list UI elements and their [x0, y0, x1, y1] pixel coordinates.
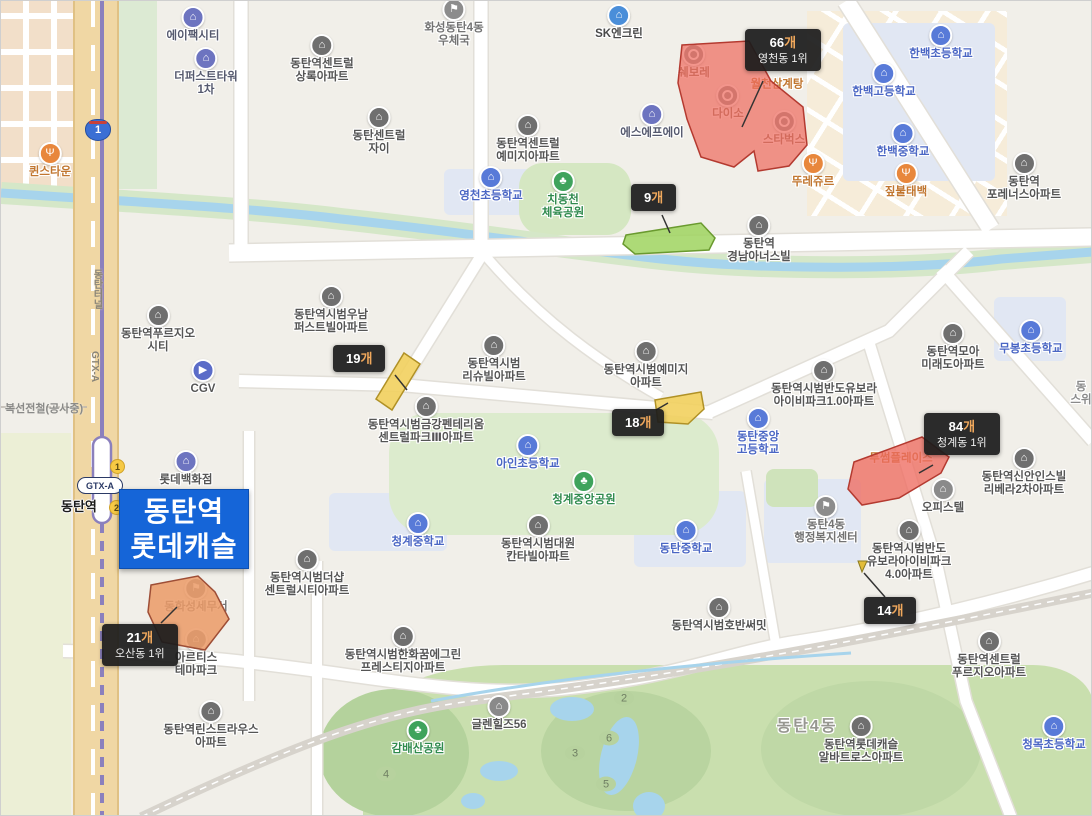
apartment-icon: ⌂: [391, 625, 414, 648]
apartment-icon: ⌂: [978, 630, 1001, 653]
map-canvas[interactable]: ⌂에이팩시티⌂더퍼스트타워1차Ψ퀸스타운⚑화성동탄4동우체국⌂동탄역센트럴상록아…: [0, 0, 1092, 816]
gas-icon: ⌂: [608, 4, 631, 27]
apartment-icon: ⌂: [1013, 152, 1036, 175]
poi-짚불태백[interactable]: Ψ짚불태백: [885, 162, 927, 199]
poi-동탄역시범금강펜테리움-센트럴파크Ⅲ아파트[interactable]: ⌂동탄역시범금강펜테리움센트럴파크Ⅲ아파트: [368, 395, 484, 445]
apartment-icon: ⌂: [849, 715, 872, 738]
poi-동탄역시범호반써밋[interactable]: ⌂동탄역시범호반써밋: [671, 596, 766, 633]
poi-label: SK엔크린: [595, 28, 643, 41]
poi-더퍼스트타워-1차[interactable]: ⌂더퍼스트타워1차: [174, 47, 237, 97]
poi-감배산공원[interactable]: ♣감배산공원: [392, 719, 445, 756]
school-icon: ⌂: [479, 166, 502, 189]
tooltip-count: 21개: [115, 629, 165, 646]
poi-동탄역센트럴-예미지아파트[interactable]: ⌂동탄역센트럴예미지아파트: [496, 114, 559, 164]
poi-label: 청계중앙공원: [552, 494, 615, 507]
poi-동탄역센트럴-상록아파트[interactable]: ⌂동탄역센트럴상록아파트: [290, 34, 353, 84]
poi-label: 동스위: [1070, 381, 1091, 407]
tooltip-rank: 영천동 1위: [758, 53, 808, 66]
restaurant-icon: Ψ: [38, 142, 61, 165]
poi-투썸플레이스[interactable]: 투썸플레이스: [869, 453, 932, 466]
poi-다이소[interactable]: 다이소: [712, 84, 744, 121]
poi-label: 롯데백화점: [160, 474, 213, 487]
poi-label: 월천삼계탕: [751, 79, 804, 92]
apartment-icon: ⌂: [482, 334, 505, 357]
poi-label: 동탄역시범한화꿈에그린프레스티지아파트: [345, 649, 461, 675]
apartment-icon: ⌂: [707, 596, 730, 619]
government-icon: ⚑: [442, 0, 465, 21]
poi-동탄역-포레너스아파트[interactable]: ⌂동탄역포레너스아파트: [987, 152, 1061, 202]
poi-label: 동탄역시범더샵센트럴시티아파트: [265, 572, 350, 598]
park-icon: ♣: [572, 470, 595, 493]
poi-한백초등학교[interactable]: ⌂한백초등학교: [909, 24, 972, 61]
tunnel-label: 동탄터널: [89, 269, 104, 309]
poi-동탄중학교[interactable]: ⌂동탄중학교: [660, 519, 713, 556]
school-icon: ⌂: [1019, 319, 1042, 342]
apartment-icon: ⌂: [414, 395, 437, 418]
apartment-icon: ⌂: [747, 214, 770, 237]
apartment-icon: ⌂: [897, 519, 920, 542]
poi-동탄역시범우남-퍼스트빌아파트[interactable]: ⌂동탄역시범우남퍼스트빌아파트: [294, 285, 368, 335]
poi-동탄역-경남아너스빌[interactable]: ⌂동탄역경남아너스빌: [727, 214, 790, 264]
poi-label: 더퍼스트타워1차: [174, 71, 237, 97]
poi-label: 아르티스테마파크: [175, 652, 217, 678]
poi-label: 투썸플레이스: [869, 453, 932, 466]
building-icon: ⌂: [184, 628, 207, 651]
poi-화성동탄4동-우체국[interactable]: ⚑화성동탄4동우체국: [424, 0, 483, 48]
poi-동탄역시범반도-유보라아이비파크-4.0아파트[interactable]: ⌂동탄역시범반도유보라아이비파크4.0아파트: [867, 519, 952, 582]
poi-label: 동탄중학교: [660, 543, 713, 556]
school-icon: ⌂: [929, 24, 952, 47]
tooltip-count: 19개: [346, 350, 372, 367]
count-tooltip-cheonggye[interactable]: 84개청계동 1위: [924, 413, 1000, 455]
apartment-icon: ⌂: [813, 359, 836, 382]
poi-label: 글렌힐즈56: [471, 719, 526, 732]
count-tooltip-osan[interactable]: 21개오산동 1위: [102, 624, 178, 666]
poi-label: 동탄역시범예미지아파트: [604, 364, 689, 390]
company-icon: ⌂: [194, 47, 217, 70]
poi-label: 에이팩시티: [167, 30, 220, 43]
park-icon: ♣: [551, 170, 574, 193]
apartment-icon: ⌂: [527, 514, 550, 537]
poi-롯데백화점[interactable]: ⌂롯데백화점: [160, 450, 213, 487]
restaurant-icon: Ψ: [801, 152, 824, 175]
count-tooltip-yellow18[interactable]: 18개: [612, 409, 664, 436]
poi-영천초등학교[interactable]: ⌂영천초등학교: [459, 166, 522, 203]
golf-hole-2: 2: [614, 691, 634, 706]
poi-label: 동탄중앙고등학교: [737, 431, 779, 457]
tooltip-count: 14개: [877, 602, 903, 619]
main-overlay-line2: 롯데캐슬: [130, 529, 237, 564]
poi-치동천-체육공원[interactable]: ♣치동천체육공원: [542, 170, 584, 220]
apartment-icon: ⌂: [516, 114, 539, 137]
poi-label: 아이비파크2.0: [980, 0, 1049, 1]
poi-label: 동화성세무서: [164, 601, 227, 614]
poi-label: 영천초등학교: [459, 190, 522, 203]
count-tooltip-yeongcheon[interactable]: 66개영천동 1위: [745, 29, 821, 71]
tooltip-rank: 청계동 1위: [937, 437, 987, 450]
apartment-icon: ⌂: [295, 548, 318, 571]
store-icon: [772, 110, 795, 133]
poi-동탄역시범-리슈빌아파트[interactable]: ⌂동탄역시범리슈빌아파트: [462, 334, 525, 384]
poi-동탄역시범대원-칸타빌아파트[interactable]: ⌂동탄역시범대원칸타빌아파트: [501, 514, 575, 564]
poi-동탄역모아-미래도아파트[interactable]: ⌂동탄역모아미래도아파트: [921, 322, 984, 372]
poi-label: 감배산공원: [392, 743, 445, 756]
school-icon: ⌂: [407, 512, 430, 535]
dept-icon: ⌂: [175, 450, 198, 473]
poi-동탄역센트럴-푸르지오아파트[interactable]: ⌂동탄역센트럴푸르지오아파트: [952, 630, 1026, 680]
poi-동탄역시범반도유보라-아이비파크1.0아파트[interactable]: ⌂동탄역시범반도유보라아이비파크1.0아파트: [771, 359, 877, 409]
tooltip-count: 84개: [937, 418, 987, 435]
terrain-greenstrip-left: [117, 1, 157, 189]
poi-label: 다이소: [712, 108, 744, 121]
route-1-shield: 1: [85, 119, 111, 141]
poi-label: 동탄역시범호반써밋: [671, 620, 766, 633]
school-icon: ⌂: [746, 407, 769, 430]
poi-label: 한백초등학교: [909, 48, 972, 61]
golf-hole-5: 5: [596, 777, 616, 792]
count-tooltip-yellow19[interactable]: 19개: [333, 345, 385, 372]
poi-에이팩시티[interactable]: ⌂에이팩시티: [167, 6, 220, 43]
dongtan-station-label[interactable]: 동탄역: [61, 496, 97, 515]
poi-스타벅스[interactable]: 스타벅스: [763, 110, 805, 147]
tooltip-pointer-cheonggye: [919, 465, 933, 473]
poi-label: 동탄역센트럴푸르지오아파트: [952, 654, 1026, 680]
government-icon: ⚑: [814, 495, 837, 518]
poi-무봉초등학교[interactable]: ⌂무봉초등학교: [999, 319, 1062, 356]
terrain-golf-course: [363, 665, 1092, 816]
tooltip-count: 18개: [625, 414, 651, 431]
school-icon: ⌂: [675, 519, 698, 542]
poi-퀸스타운[interactable]: Ψ퀸스타운: [29, 142, 71, 179]
school-icon: ⌂: [872, 62, 895, 85]
poi-label: 동탄센트럴자이: [353, 130, 406, 156]
poi-label: 에스에프에이: [620, 127, 683, 140]
construction-label: 복선전철(공사중): [5, 400, 83, 416]
golf-hole-3: 3: [565, 746, 585, 761]
poi-label: 동탄역센트럴예미지아파트: [496, 138, 559, 164]
poi-label: 스타벅스: [763, 134, 805, 147]
poi-동탄역시범더샵-센트럴시티아파트[interactable]: ⌂동탄역시범더샵센트럴시티아파트: [265, 548, 350, 598]
golf-hole-6: 6: [599, 731, 619, 746]
main-overlay-line1: 동탄역: [144, 494, 224, 529]
apartment-icon: ⌂: [941, 322, 964, 345]
poi-label: 동탄역시범금강펜테리움센트럴파크Ⅲ아파트: [368, 419, 484, 445]
school-icon: ⌂: [516, 434, 539, 457]
golf-hole-4: 4: [376, 767, 396, 782]
poi-아이비파크2.0: 아이비파크2.0: [980, 0, 1049, 1]
region-green-9[interactable]: [623, 223, 715, 254]
poi-글렌힐즈56[interactable]: ⌂글렌힐즈56: [471, 695, 526, 732]
poi-쉐보레[interactable]: 쉐보레: [678, 43, 710, 80]
store-icon: [683, 43, 706, 66]
poi-동탄역푸르지오-시티[interactable]: ⌂동탄역푸르지오시티: [121, 304, 195, 354]
poi-label: 짚불태백: [885, 186, 927, 199]
apartment-icon: ⌂: [199, 700, 222, 723]
building-icon: ⌂: [931, 478, 954, 501]
poi-에스에프에이[interactable]: ⌂에스에프에이: [620, 103, 683, 140]
apartment-icon: ⌂: [147, 304, 170, 327]
poi-동탄4동-행정복지센터[interactable]: ⚑동탄4동행정복지센터: [794, 495, 857, 545]
park-icon: ♣: [407, 719, 430, 742]
small-count-marker[interactable]: [858, 561, 867, 572]
restaurant-icon: Ψ: [894, 162, 917, 185]
poi-label: 동탄역포레너스아파트: [987, 176, 1061, 202]
poi-label: CGV: [191, 383, 216, 396]
poi-label: 치동천체육공원: [542, 194, 584, 220]
gtx-a-badge: GTX-A: [77, 477, 123, 494]
apartment-icon: ⌂: [1012, 447, 1035, 470]
poi-label: 쉐보레: [678, 67, 710, 80]
apartment-icon: ⌂: [320, 285, 343, 308]
poi-label: 동탄역시범우남퍼스트빌아파트: [294, 309, 368, 335]
poi-SK엔크린[interactable]: ⌂SK엔크린: [595, 4, 643, 41]
poi-청계중앙공원[interactable]: ♣청계중앙공원: [552, 470, 615, 507]
poi-label: 동탄역경남아너스빌: [727, 238, 790, 264]
school-icon: ⌂: [892, 122, 915, 145]
poi-동탄역롯데캐슬-알바트로스아파트[interactable]: ⌂동탄역롯데캐슬알바트로스아파트: [819, 715, 904, 765]
poi-label: 퀸스타운: [29, 166, 71, 179]
poi-아르티스-테마파크[interactable]: ⌂아르티스테마파크: [175, 628, 217, 678]
poi-동-스위: 동스위: [1070, 381, 1091, 407]
cinema-icon: ▶: [191, 359, 214, 382]
poi-월천삼계탕[interactable]: 월천삼계탕: [751, 79, 804, 92]
tooltip-pointer-green9: [662, 215, 670, 233]
poi-label: 동탄역롯데캐슬알바트로스아파트: [819, 739, 904, 765]
poi-label: 청계중학교: [392, 536, 445, 549]
poi-label: 동탄역시범반도유보라아이비파크1.0아파트: [771, 383, 877, 409]
poi-오피스텔[interactable]: ⌂오피스텔: [922, 478, 964, 515]
company-icon: ⌂: [182, 6, 205, 29]
poi-label: 동탄역시범리슈빌아파트: [462, 358, 525, 384]
poi-뚜레쥬르[interactable]: Ψ뚜레쥬르: [792, 152, 834, 189]
main-complex-overlay[interactable]: 동탄역 롯데캐슬: [119, 489, 249, 569]
poi-label: 무봉초등학교: [999, 343, 1062, 356]
poi-동탄역린스트라우스-아파트[interactable]: ⌂동탄역린스트라우스아파트: [163, 700, 258, 750]
poi-동탄역시범한화꿈에그린-프레스티지아파트[interactable]: ⌂동탄역시범한화꿈에그린프레스티지아파트: [345, 625, 461, 675]
gtx-line-label: GTX-A: [89, 351, 100, 382]
poi-label: 동탄역센트럴상록아파트: [290, 58, 353, 84]
poi-label: 동탄역시범대원칸타빌아파트: [501, 538, 575, 564]
poi-label: 동탄역린스트라우스아파트: [163, 724, 258, 750]
apartment-icon: ⌂: [634, 340, 657, 363]
poi-CGV[interactable]: ▶CGV: [191, 359, 216, 396]
poi-label: 뚜레쥬르: [792, 176, 834, 189]
poi-한백고등학교[interactable]: ⌂한백고등학교: [852, 62, 915, 99]
poi-label: 동탄역푸르지오시티: [121, 328, 195, 354]
tooltip-count: 66개: [758, 34, 808, 51]
poi-label: 아인초등학교: [496, 458, 559, 471]
count-tooltip-marker14[interactable]: 14개: [864, 597, 916, 624]
tooltip-count: 9개: [644, 189, 663, 206]
terrain-field-bottomleft: [1, 433, 71, 816]
poi-동탄역시범예미지-아파트[interactable]: ⌂동탄역시범예미지아파트: [604, 340, 689, 390]
count-tooltip-green9[interactable]: 9개: [631, 184, 676, 211]
apartment-icon: ⌂: [310, 34, 333, 57]
poi-청계중학교[interactable]: ⌂청계중학교: [392, 512, 445, 549]
school-icon: ⌂: [1042, 715, 1065, 738]
poi-label: 한백중학교: [877, 146, 930, 159]
building-icon: ⌂: [488, 695, 511, 718]
poi-label: 동탄4동행정복지센터: [794, 519, 857, 545]
exit-1-badge: 1: [110, 459, 125, 474]
poi-label: 동탄역모아미래도아파트: [921, 346, 984, 372]
poi-동화성세무서[interactable]: ⚑동화성세무서: [164, 577, 227, 614]
poi-label: 청목초등학교: [1022, 739, 1085, 752]
poi-label: 화성동탄4동우체국: [424, 22, 483, 48]
poi-동탄센트럴-자이[interactable]: ⌂동탄센트럴자이: [353, 106, 406, 156]
poi-청목초등학교[interactable]: ⌂청목초등학교: [1022, 715, 1085, 752]
poi-label: 한백고등학교: [852, 86, 915, 99]
poi-동탄중앙-고등학교[interactable]: ⌂동탄중앙고등학교: [737, 407, 779, 457]
tooltip-rank: 오산동 1위: [115, 648, 165, 661]
poi-한백중학교[interactable]: ⌂한백중학교: [877, 122, 930, 159]
government-icon: ⚑: [184, 577, 207, 600]
apartment-icon: ⌂: [368, 106, 391, 129]
poi-label: 동탄역신안인스빌리베라2차아파트: [982, 471, 1067, 497]
poi-label: 동탄역시범반도유보라아이비파크4.0아파트: [867, 543, 952, 582]
poi-label: 오피스텔: [922, 502, 964, 515]
tooltip-pointer-yellow19: [395, 375, 407, 390]
store-icon: [717, 84, 740, 107]
poi-아인초등학교[interactable]: ⌂아인초등학교: [496, 434, 559, 471]
company-icon: ⌂: [640, 103, 663, 126]
